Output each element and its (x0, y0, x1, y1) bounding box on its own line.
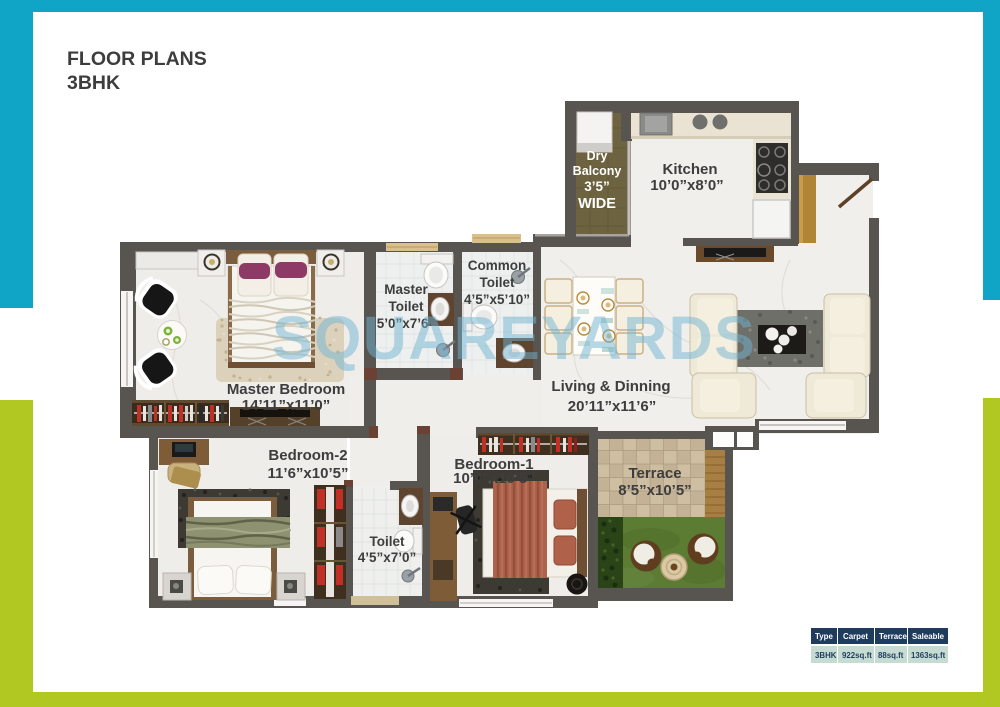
svg-text:Saleable: Saleable (912, 632, 945, 641)
svg-text:Type: Type (815, 632, 833, 641)
svg-text:Toilet: Toilet (480, 275, 516, 290)
svg-text:SQUAREYARDS: SQUAREYARDS (272, 304, 756, 372)
svg-text:Carpet: Carpet (843, 632, 868, 641)
svg-text:Terrace: Terrace (879, 632, 908, 641)
svg-text:3BHK: 3BHK (815, 651, 837, 660)
svg-text:4’5”x7’0”: 4’5”x7’0” (358, 550, 417, 565)
svg-text:Kitchen: Kitchen (662, 161, 717, 178)
svg-text:88sq.ft: 88sq.ft (878, 651, 904, 660)
svg-text:Toilet: Toilet (370, 534, 406, 549)
svg-text:1363sq.ft: 1363sq.ft (911, 651, 946, 660)
svg-text:Bedroom-2: Bedroom-2 (268, 447, 347, 464)
svg-text:10’0”x8’0”: 10’0”x8’0” (650, 177, 723, 194)
svg-text:Terrace: Terrace (628, 465, 681, 482)
svg-text:3BHK: 3BHK (67, 72, 120, 94)
svg-text:FLOOR PLANS: FLOOR PLANS (67, 48, 207, 70)
svg-text:11’6”x10’5”: 11’6”x10’5” (268, 465, 349, 482)
svg-text:Master Bedroom: Master Bedroom (227, 381, 345, 398)
svg-text:10’0”x10’5”: 10’0”x10’5” (453, 470, 535, 487)
svg-text:WIDE: WIDE (578, 196, 616, 212)
svg-text:922sq.ft: 922sq.ft (842, 651, 872, 660)
svg-text:Balcony: Balcony (573, 164, 622, 178)
svg-text:Living & Dinning: Living & Dinning (551, 378, 670, 395)
svg-text:3’5”: 3’5” (584, 179, 610, 194)
svg-text:Dry: Dry (587, 149, 608, 163)
svg-text:14’11”x11’0”: 14’11”x11’0” (242, 397, 330, 414)
svg-text:8’5”x10’5”: 8’5”x10’5” (618, 482, 691, 499)
svg-text:20’11”x11’6”: 20’11”x11’6” (568, 398, 656, 415)
svg-text:Master: Master (384, 282, 428, 297)
svg-text:Common: Common (468, 258, 527, 273)
